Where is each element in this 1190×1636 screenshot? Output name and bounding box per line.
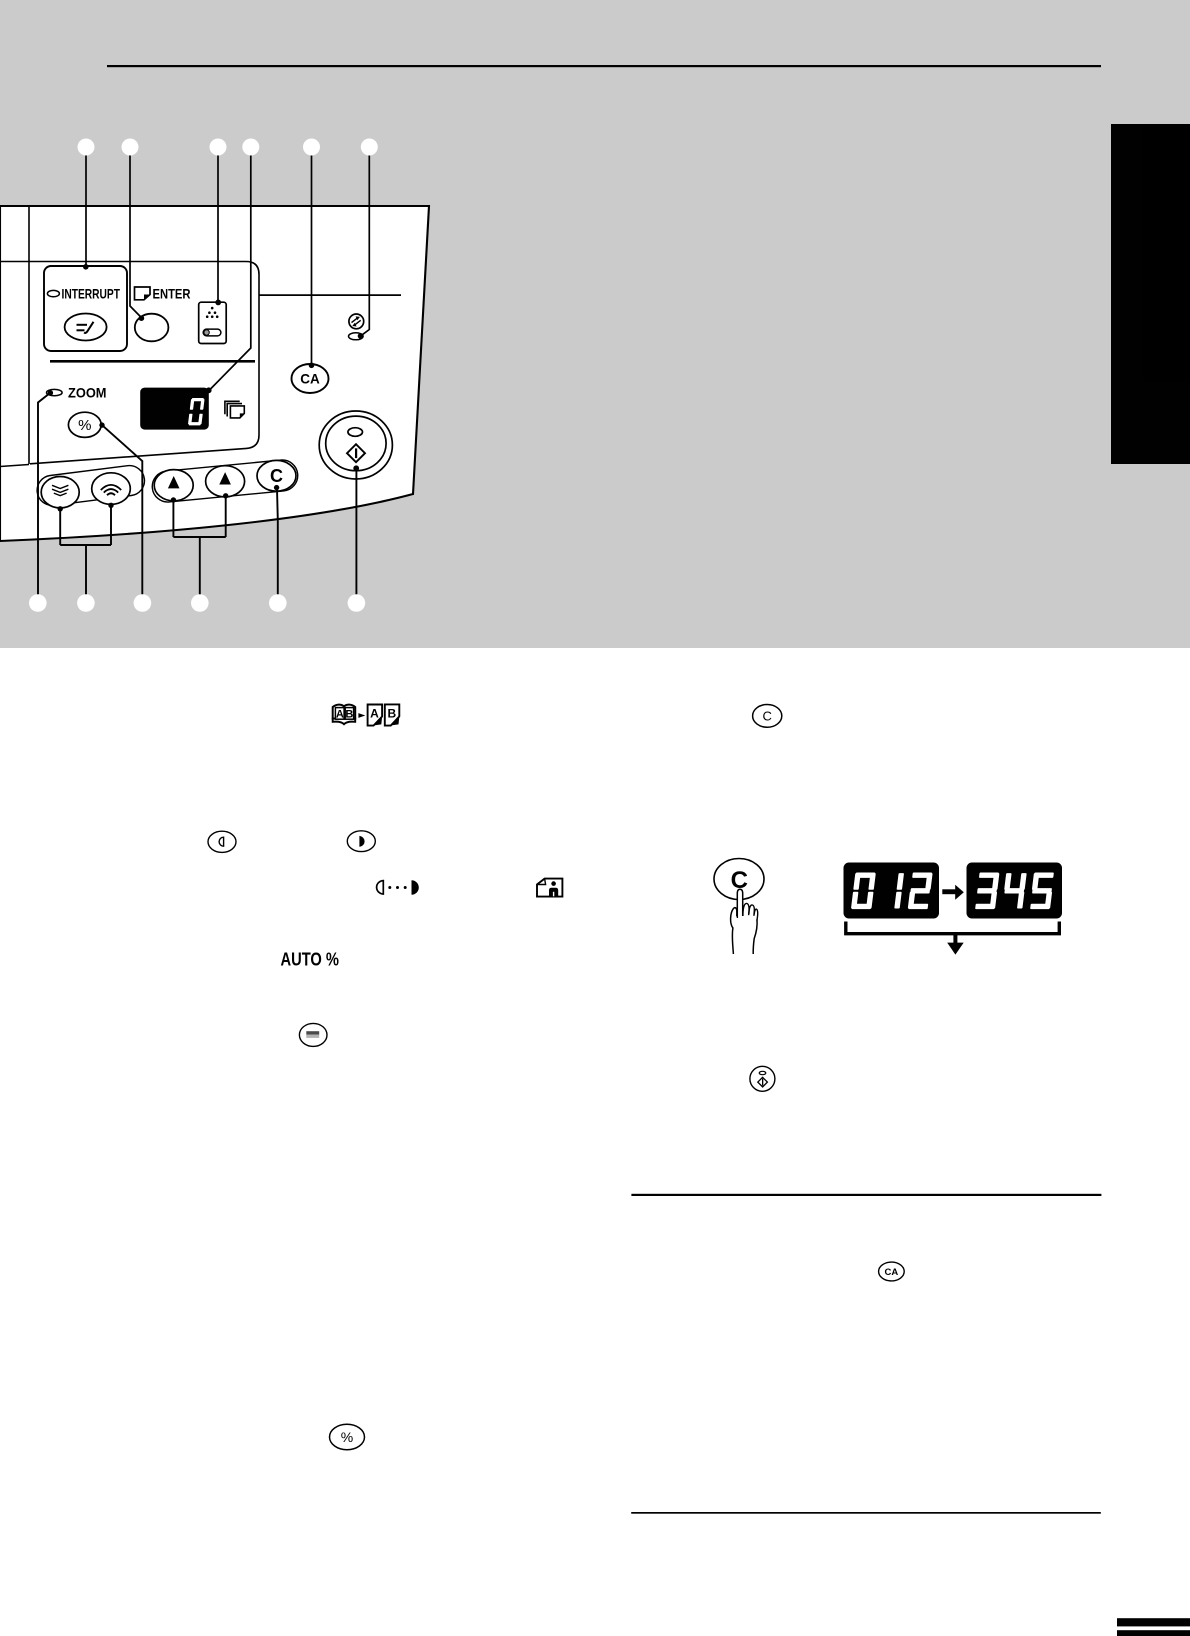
svg-text:INTERRUPT: INTERRUPT [62,286,121,302]
svg-text:C: C [270,466,283,486]
svg-text:CA: CA [885,1267,899,1278]
svg-text:B: B [345,708,353,720]
svg-text:ENTER: ENTER [153,286,191,302]
svg-text:CA: CA [300,372,320,387]
svg-text:AUTO %: AUTO % [281,950,340,970]
svg-text:C: C [763,709,772,724]
svg-text:ZOOM: ZOOM [68,385,107,401]
svg-text:A: A [336,708,344,720]
svg-text:%: % [341,1429,353,1445]
svg-text:A: A [370,707,379,721]
svg-text:%: % [78,417,91,434]
svg-text:B: B [387,707,396,721]
